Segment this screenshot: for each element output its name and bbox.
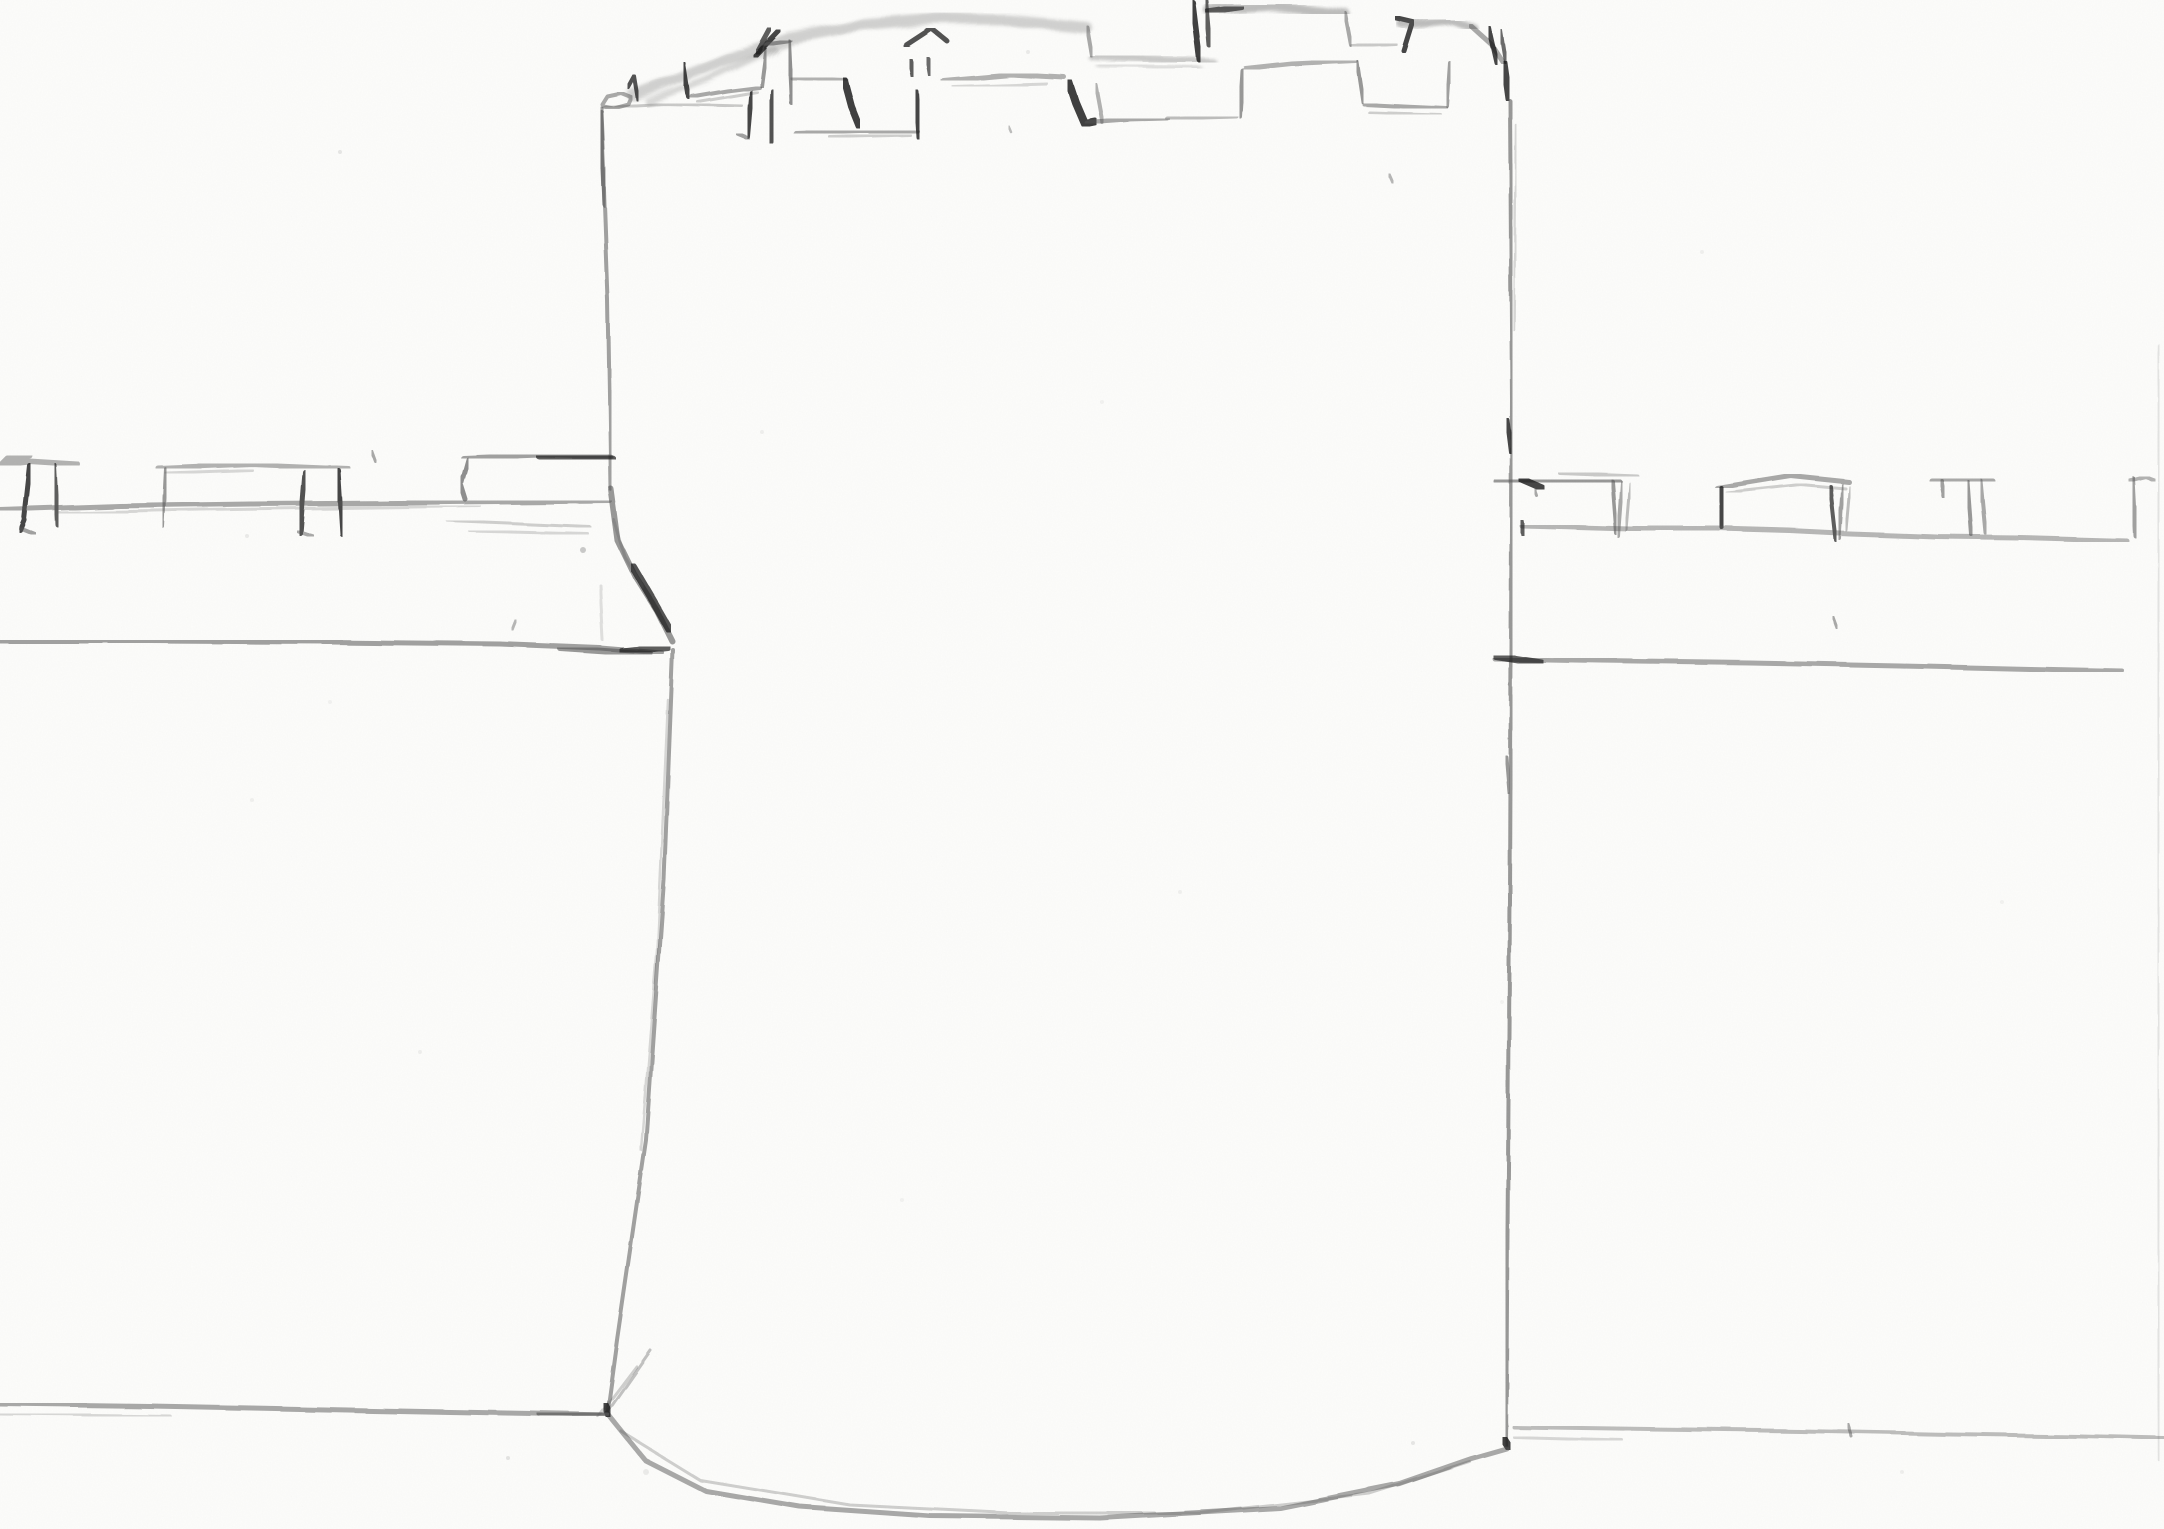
tower-battlement-stroke-back-crenel-2	[1352, 44, 1396, 46]
left-wall-stroke-merlon3-top-dark	[540, 456, 612, 459]
tower-battlement-stroke-crenel5-double	[1369, 112, 1440, 114]
speck-3	[580, 547, 586, 553]
right-wall-stroke-merlonA-top	[1498, 480, 1618, 482]
right-wall-stroke-merlonD-vert	[2133, 479, 2136, 536]
speck-9	[1500, 1000, 1504, 1004]
speck-11	[2000, 900, 2004, 904]
speck-15	[328, 700, 332, 704]
speck-1	[1026, 50, 1030, 54]
speck-6	[418, 1050, 422, 1054]
speck-8	[900, 1198, 904, 1202]
sketch-svg	[0, 0, 2164, 1529]
speck-14	[1900, 1470, 1904, 1474]
speck-12	[1100, 400, 1104, 404]
paper-grain-overlay	[0, 0, 2164, 1529]
tower-battlement-stroke-crenel4-right-up	[1240, 71, 1243, 117]
tower-battlement-stroke-inner-ledge	[792, 78, 846, 80]
left-wall-stroke-face-junction-blob	[622, 647, 668, 652]
right-wall-stroke-walk-start-dark	[1521, 521, 1524, 535]
tower-battlement-stroke-tick-pair-b	[927, 58, 930, 75]
speck-5	[1178, 890, 1182, 894]
speck-4	[760, 430, 764, 434]
left-wall-stroke-wall-bottom-double	[0, 1414, 170, 1416]
speck-16	[506, 1456, 510, 1460]
tower-battlement-stroke-crenel3-bottom	[795, 131, 917, 133]
tower-battlement-stroke-merlon2-right	[789, 42, 792, 103]
speck-0	[338, 150, 342, 154]
tower-battlement-stroke-tick-pair-a	[910, 60, 913, 76]
right-wall-stroke-merlonB-vert-left	[1720, 487, 1723, 528]
scanned-pencil-sketch-page	[0, 0, 2164, 1529]
left-wall-stroke-wall-bottom-dark-end	[540, 1413, 606, 1415]
tower-battlement-stroke-right-corner-blob	[1504, 63, 1509, 99]
speck-2	[245, 534, 249, 538]
speck-10	[250, 798, 254, 802]
tower-battlement-stroke-crenel3-right-up	[916, 92, 919, 137]
tower-battlement-stroke-crenel4-extend	[1168, 117, 1237, 119]
right-wall-stroke-paper-edge	[2158, 345, 2159, 1460]
tower-battlement-stroke-hang-stroke-2	[770, 91, 773, 141]
speck-17	[1411, 1441, 1415, 1445]
tower-battlement-stroke-crenel3-double	[830, 135, 910, 137]
speck-7	[1700, 250, 1704, 254]
left-wall-stroke-merlon1-vert-2	[55, 466, 58, 525]
speck-13	[643, 1469, 649, 1475]
